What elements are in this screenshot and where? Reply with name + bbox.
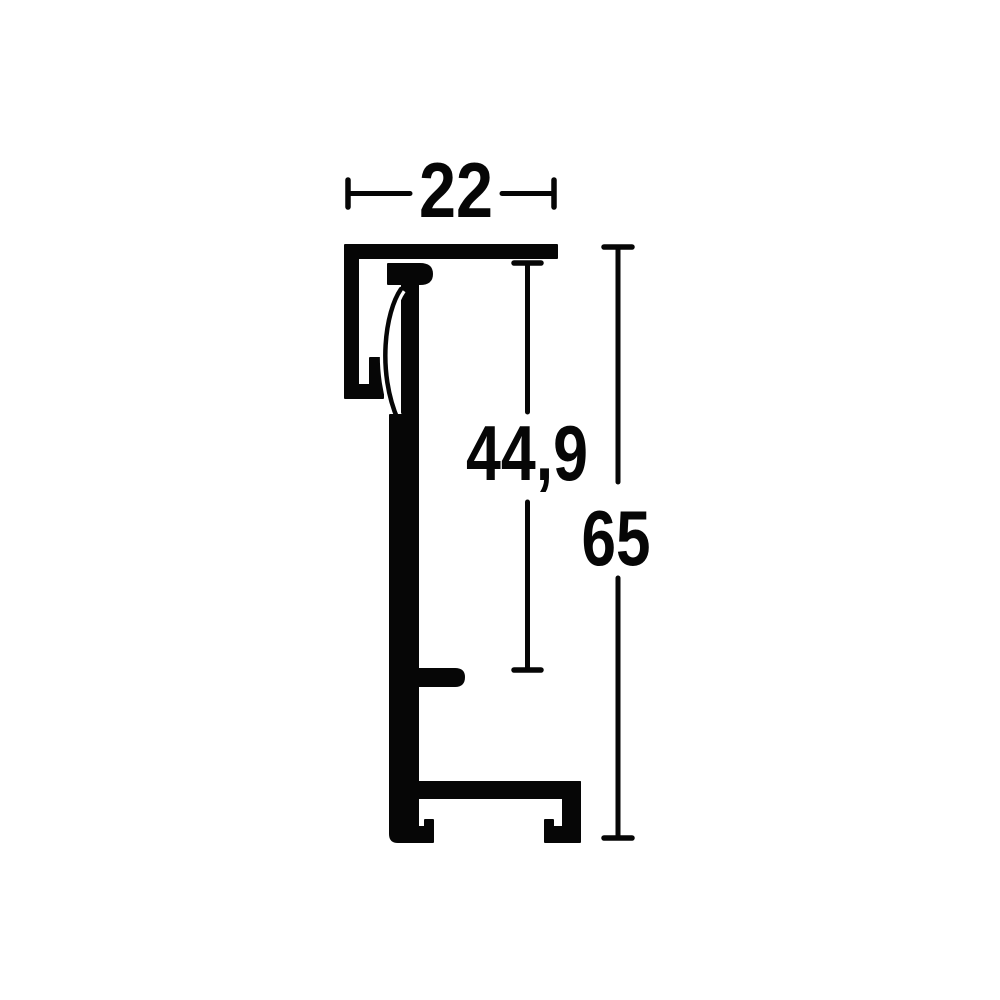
profile-upper-web [402,282,418,425]
outer-height-dimension-label: 65 [582,494,651,582]
inner-height-dimension: 44,9 [466,263,588,670]
profile-mid-rib [418,669,464,686]
drawing-canvas: 22 44,9 65 [0,0,1000,1000]
outer-height-dimension: 65 [582,247,651,838]
profile-main-web [390,415,433,842]
profile-drawing: 22 44,9 65 [0,0,1000,1000]
width-dimension-label: 22 [419,146,493,234]
inner-height-dimension-label: 44,9 [466,409,588,497]
profile-bottom-flange [418,782,580,798]
width-dimension: 22 [348,146,554,234]
